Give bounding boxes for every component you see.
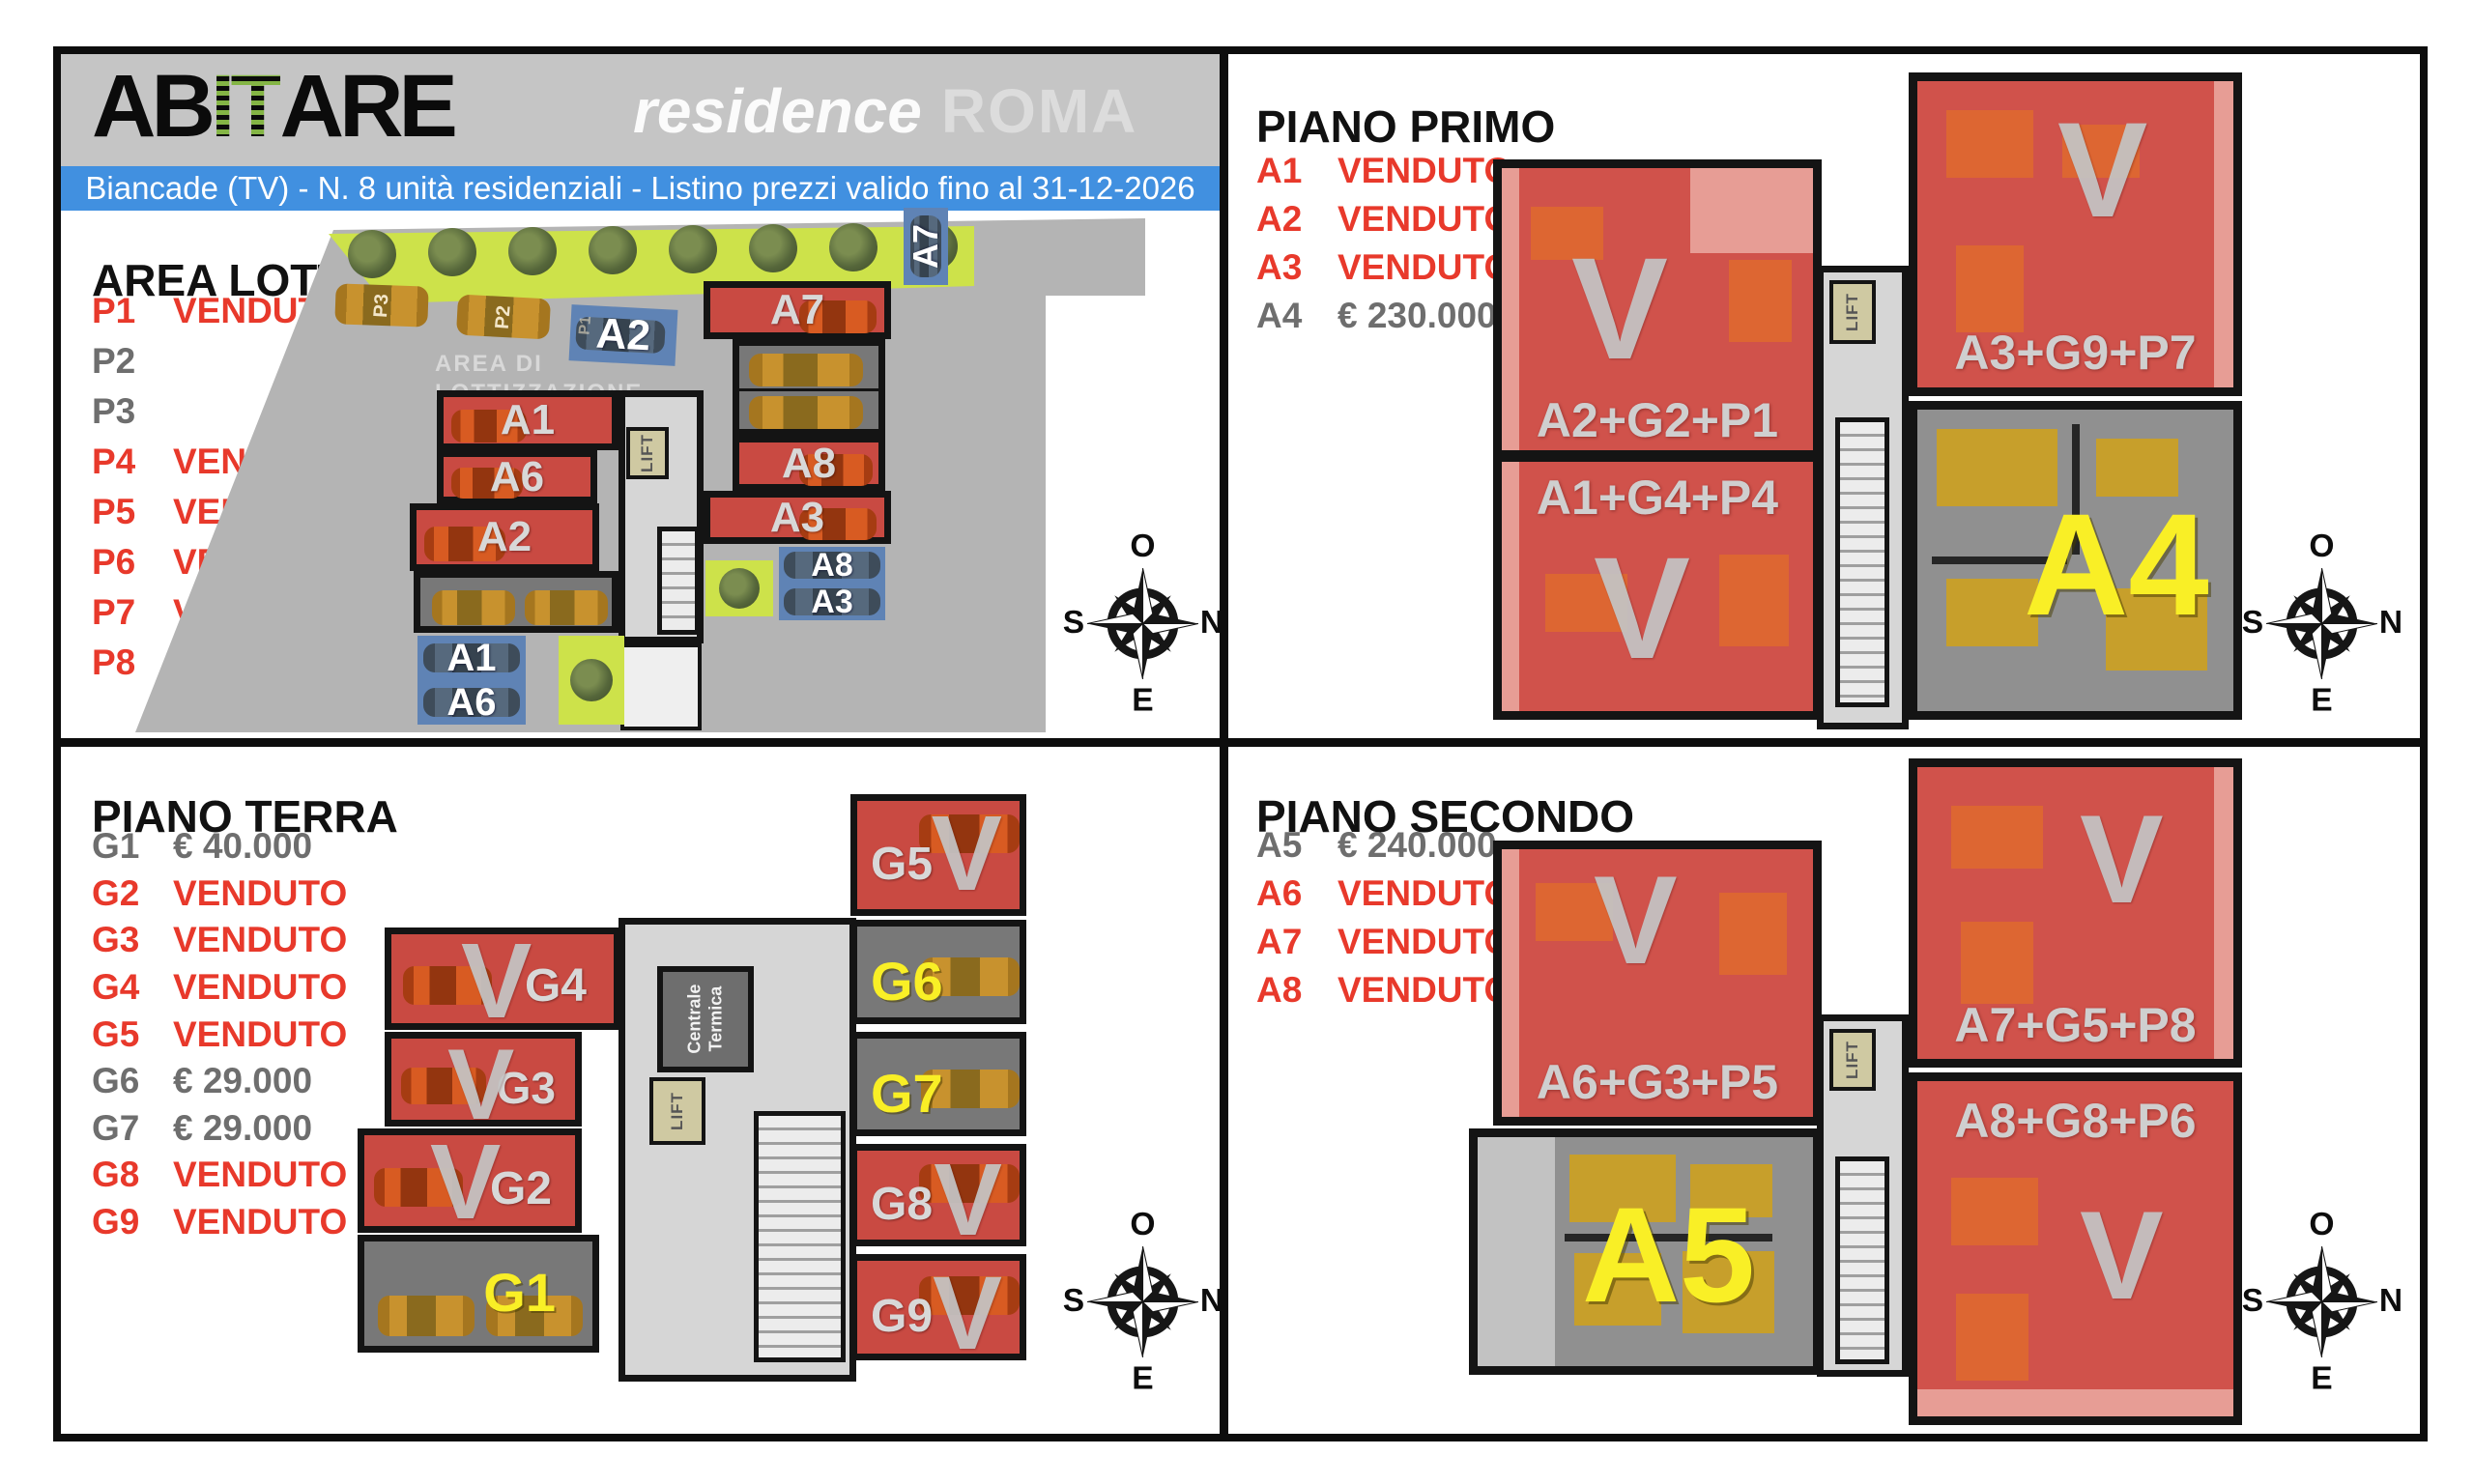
block-label: A7: [770, 286, 824, 334]
furniture: [1956, 245, 2024, 332]
garage-block-a2: A2: [410, 503, 599, 571]
green-square: [559, 636, 624, 725]
car-icon-p3: P3: [334, 283, 428, 327]
lift-label: LIFT: [1843, 293, 1862, 331]
piano-terra-list: G1€ 40.000 G2VENDUTO G3VENDUTO G4VENDUTO…: [92, 823, 347, 1245]
block-label: A2: [477, 513, 532, 561]
unit-code: A7: [1256, 922, 1338, 962]
spot-label: A1: [446, 637, 496, 680]
unit-code: G3: [92, 920, 173, 960]
unit-combo-label: A6+G3+P5: [1502, 1054, 1813, 1110]
car-icon-p2: P2: [456, 295, 551, 340]
unit-status: VENDUTO: [173, 1014, 347, 1055]
residence-title: residenceROMA: [633, 75, 1137, 147]
compass-south-label: S: [2242, 1283, 2263, 1319]
garage-label: G5: [871, 838, 933, 891]
compass-north-label: N: [2379, 1283, 2402, 1319]
compass-rose: O N S E: [2228, 529, 2416, 718]
unit-code: A5: [1256, 825, 1338, 866]
block-label: A6: [490, 453, 544, 501]
unit-status: VENDUTO: [173, 873, 347, 914]
stairs: [1835, 1156, 1889, 1364]
list-item: G3VENDUTO: [92, 917, 347, 964]
list-item: A4€ 230.000: [1256, 292, 1511, 340]
compass-south-label: S: [1063, 605, 1084, 641]
car-label: P3: [370, 293, 394, 318]
compass-north-label: N: [2379, 605, 2402, 641]
sold-mark: V: [447, 1035, 514, 1135]
compass-east-label: E: [1132, 1360, 1153, 1396]
list-item: G1€ 40.000: [92, 823, 347, 870]
garage-g4: V G4: [385, 927, 620, 1030]
apartment-a3: V A3+G9+P7: [1909, 72, 2242, 396]
apartment-a6: V A6+G3+P5: [1493, 841, 1822, 1126]
sold-mark: V: [1594, 857, 1678, 983]
lift-room: LIFT: [626, 427, 669, 479]
list-item: A3VENDUTO: [1256, 243, 1511, 292]
stairs: [1835, 417, 1889, 707]
tree-icon: [428, 228, 476, 276]
available-unit-label: A5: [1582, 1187, 1755, 1323]
compass-rose: O N S E: [2228, 1208, 2416, 1396]
garage-label: G8: [871, 1178, 933, 1231]
sold-mark: V: [932, 801, 1002, 907]
list-item: G8VENDUTO: [92, 1152, 347, 1199]
sold-mark: V: [1594, 535, 1690, 680]
list-item: G7€ 29.000: [92, 1105, 347, 1153]
tree-icon: [570, 659, 613, 701]
garage-g1: G1: [358, 1235, 599, 1353]
garage-g8: G8 V: [850, 1144, 1026, 1246]
loggia: [1690, 168, 1813, 253]
parking-bay-right: [733, 339, 885, 436]
piano-terra-plan: CentraleTermica LIFT V G4 V G3 V G2 G1 G…: [348, 787, 1063, 1396]
car-icon: [525, 590, 608, 625]
site-plan: P3 P2 P1 A2 AREA DI LOTTIZZAZIONE A1 A6 …: [130, 203, 1150, 741]
unit-code: A3: [1256, 247, 1338, 288]
sold-mark: V: [934, 1149, 1002, 1251]
list-item: G6€ 29.000: [92, 1058, 347, 1105]
green-square: [705, 560, 773, 616]
garage-g3: V G3: [385, 1032, 582, 1127]
unit-status: € 29.000: [173, 1108, 312, 1149]
grid-divider-horizontal: [53, 738, 2428, 747]
loggia: [1478, 1137, 1555, 1366]
car-label: P2: [491, 304, 515, 329]
corridor: LIFT: [1817, 1014, 1909, 1377]
logo-part-ab: AB: [92, 62, 211, 151]
unit-combo-label: A3+G9+P7: [1917, 325, 2233, 381]
sold-mark: V: [933, 1261, 1002, 1365]
garage-g7: G7: [850, 1032, 1026, 1136]
loggia: [1917, 1389, 2233, 1416]
stairs: [657, 527, 700, 635]
compass-east-label: E: [2311, 1360, 2332, 1396]
compass-east-label: E: [2311, 682, 2332, 718]
corridor: LIFT: [1817, 266, 1909, 729]
unit-code: G2: [92, 873, 173, 914]
lift-room: LIFT: [1829, 280, 1876, 344]
garage-g9: G9 V: [850, 1254, 1026, 1360]
unit-combo-label: A2+G2+P1: [1502, 392, 1813, 448]
apartment-a4: A4: [1909, 401, 2242, 720]
garage-g6: G6: [850, 920, 1026, 1024]
unit-code: G5: [92, 1014, 173, 1055]
furniture: [1951, 1178, 2038, 1245]
apartment-a2-a1: V A2+G2+P1 A1+G4+P4 V: [1493, 159, 1822, 720]
unit-code: A6: [1256, 873, 1338, 914]
compass-rose: O N S E: [1049, 1208, 1237, 1396]
residence-word: residence: [633, 76, 922, 146]
list-item: A2VENDUTO: [1256, 195, 1511, 243]
compass-west-label: O: [1130, 1208, 1155, 1242]
compass-west-label: O: [1130, 529, 1155, 564]
tree-icon: [719, 568, 760, 609]
furniture: [1729, 260, 1792, 342]
abitare-logo: ABITARE: [92, 62, 453, 151]
block-label: A3: [770, 494, 824, 542]
spot-label: A6: [446, 681, 496, 725]
sold-mark: V: [2080, 796, 2164, 922]
unit-status: € 29.000: [173, 1061, 312, 1101]
block-label: A8: [782, 440, 836, 488]
parking-spot-a8: A8: [779, 547, 885, 584]
garage-g5: G5 V: [850, 794, 1026, 916]
spot-label: A8: [811, 547, 852, 585]
logo-part-it: IT: [211, 62, 280, 151]
compass-west-label: O: [2309, 1208, 2334, 1242]
tree-icon: [348, 230, 396, 278]
garage-label: G4: [525, 959, 587, 1013]
tree-icon: [749, 224, 797, 272]
car-icon: [432, 590, 515, 625]
spot-label: A3: [811, 584, 852, 621]
garage-label: G1: [483, 1261, 556, 1324]
unit-combo-label: A1+G4+P4: [1502, 470, 1813, 526]
unit-code: A1: [1256, 151, 1338, 191]
sold-mark: V: [430, 1129, 501, 1236]
compass-west-label: O: [2309, 529, 2334, 564]
compass-east-label: E: [1132, 682, 1153, 718]
centrale-termica-room: CentraleTermica: [657, 966, 754, 1072]
list-item: A1VENDUTO: [1256, 147, 1511, 195]
unit-combo-label: A8+G8+P6: [1917, 1093, 2233, 1149]
entry-area: [620, 643, 702, 730]
garage-label: G9: [871, 1290, 933, 1343]
list-item: G5VENDUTO: [92, 1011, 347, 1058]
tree-icon: [669, 225, 717, 273]
tree-icon: [508, 227, 557, 275]
parking-spot-a3: A3: [779, 584, 885, 620]
lift-label: LIFT: [1843, 1041, 1862, 1079]
block-label: A1: [501, 396, 555, 444]
city-word: ROMA: [941, 76, 1138, 146]
compass-south-label: S: [1063, 1283, 1084, 1319]
parking-spot-a6: A6: [417, 680, 526, 725]
piano-primo-plan: V A2+G2+P1 A1+G4+P4 V LIFT V A3+G9+P7 A4: [1479, 58, 2329, 734]
parking-bay-left: [414, 571, 618, 633]
unit-status: VENDUTO: [173, 1155, 347, 1195]
compass-south-label: S: [2242, 605, 2263, 641]
furniture: [1719, 555, 1789, 646]
unit-code: A4: [1256, 296, 1338, 336]
car-label: P1: [576, 315, 595, 335]
garage-block-a1: A1: [437, 390, 618, 450]
lift-label: LIFT: [668, 1092, 687, 1130]
car-icon: [749, 354, 863, 386]
garage-block-a6: A6: [437, 450, 597, 503]
unit-code: G4: [92, 967, 173, 1008]
logo-part-are: ARE: [280, 62, 453, 151]
tree-icon: [589, 226, 637, 274]
lift-label: LIFT: [638, 434, 657, 472]
piano-primo-list: A1VENDUTO A2VENDUTO A3VENDUTO A4€ 230.00…: [1256, 147, 1511, 340]
list-item: G2VENDUTO: [92, 870, 347, 918]
divider: [1502, 450, 1813, 462]
divider: [739, 388, 878, 391]
list-item: G4VENDUTO: [92, 964, 347, 1012]
unit-code: A8: [1256, 970, 1338, 1011]
sold-mark: V: [2057, 102, 2147, 238]
furniture: [1719, 893, 1787, 975]
unit-code: G6: [92, 1061, 173, 1101]
unit-code: G1: [92, 826, 173, 867]
garage-label: G6: [871, 950, 943, 1013]
piano-secondo-plan: V A6+G3+P5 A5 LIFT V A7+G5+P8 A8+G8+P6 V: [1469, 754, 2329, 1430]
furniture: [1956, 1294, 2028, 1381]
garage-label: G7: [871, 1062, 943, 1125]
unit-status: VENDUTO: [173, 1202, 347, 1242]
sold-mark: V: [1571, 236, 1668, 381]
furniture: [1951, 806, 2043, 869]
parking-spot-a7: A7: [904, 208, 948, 285]
sold-mark: V: [2080, 1192, 2164, 1318]
unit-status: € 230.000: [1338, 296, 1497, 336]
apartment-a5: A5: [1469, 1128, 1822, 1375]
stairs: [754, 1111, 846, 1362]
car-icon: [378, 1296, 475, 1336]
unit-code: G7: [92, 1108, 173, 1149]
furniture: [1961, 922, 2033, 1004]
available-unit-label: A4: [2024, 492, 2209, 637]
unit-code: A2: [1256, 199, 1338, 240]
unit-status: VENDUTO: [173, 967, 347, 1008]
unit-combo-label: A7+G5+P8: [1917, 997, 2233, 1053]
centrale-termica-label: CentraleTermica: [684, 985, 726, 1054]
unit-status: € 40.000: [173, 826, 312, 867]
lift-room: LIFT: [649, 1077, 705, 1145]
garage-g2: V G2: [358, 1128, 582, 1233]
car-icon: [749, 396, 863, 429]
unit-code: G8: [92, 1155, 173, 1195]
furniture: [1946, 110, 2033, 178]
unit-status: VENDUTO: [173, 920, 347, 960]
tree-icon: [829, 223, 877, 271]
compass-rose: O N S E: [1049, 529, 1237, 718]
sold-mark: V: [461, 928, 532, 1035]
unit-code: G9: [92, 1202, 173, 1242]
parking-spot-a1: A1: [417, 636, 526, 680]
lift-room: LIFT: [1829, 1029, 1876, 1091]
spot-label: A7: [906, 224, 946, 269]
list-item: G9VENDUTO: [92, 1199, 347, 1246]
apartment-a7: V A7+G5+P8: [1909, 758, 2242, 1068]
garage-block-a3: A3: [704, 491, 891, 544]
garage-block-a8: A8: [733, 436, 885, 491]
apartment-a8: A8+G8+P6 V: [1909, 1072, 2242, 1425]
garage-block-a7: A7: [704, 281, 891, 339]
